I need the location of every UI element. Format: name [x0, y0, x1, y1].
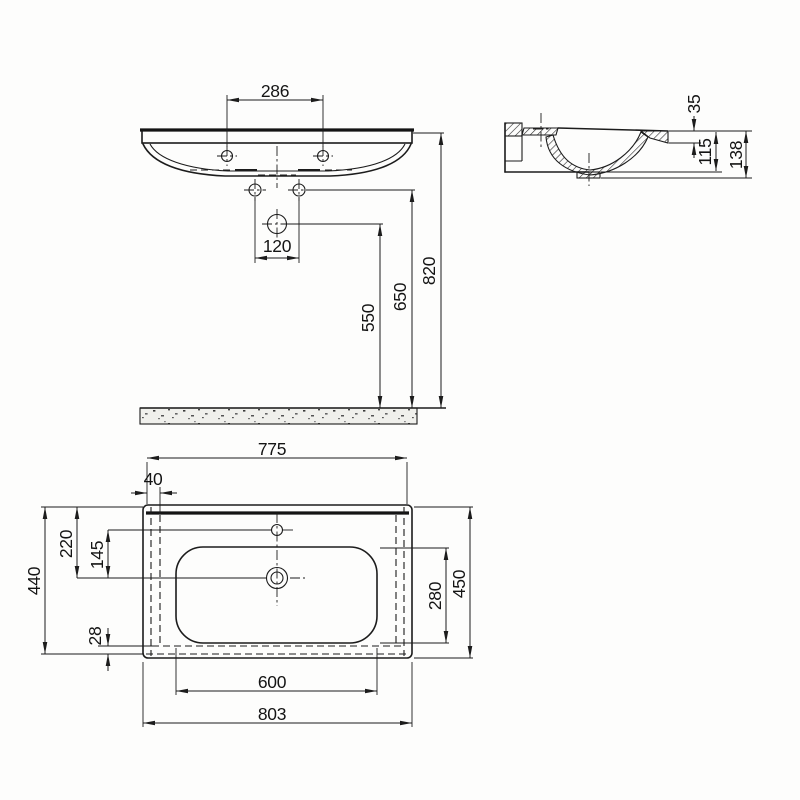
dim-tap-to-drain: 145	[87, 541, 107, 569]
bowl-outline-plan	[176, 547, 377, 643]
plan-view: 775 40 440 220 145 28 280 450 600	[24, 439, 473, 727]
dim-overall-height: 820	[419, 256, 439, 285]
dim-tap-hole-spacing: 286	[261, 81, 289, 101]
dim-overall-width: 803	[258, 704, 286, 724]
drain-hole-plan	[267, 568, 306, 589]
dim-drain-height: 550	[358, 303, 378, 332]
dim-bowl-inner-width: 600	[258, 672, 287, 692]
tap-hole-plan	[272, 525, 297, 536]
dim-bowl-inner-depth: 280	[425, 581, 445, 610]
drain-boss-section	[577, 172, 600, 178]
dim-back-edge-offset: 40	[144, 469, 163, 489]
side-view: 35 115 138	[505, 95, 752, 186]
technical-drawing: 286 120 550 650	[0, 0, 800, 800]
bowl-wall-section	[546, 132, 648, 175]
dim-overall-depth-plan: 440	[24, 566, 44, 595]
dim-fixing-hole-spacing: 120	[263, 236, 292, 256]
dim-top-width: 775	[258, 439, 286, 459]
dim-bowl-depth: 115	[695, 139, 715, 166]
dim-back-to-drain: 220	[56, 529, 76, 558]
back-ledge-section	[505, 123, 522, 136]
tap-hole-right	[313, 146, 333, 166]
dim-fixing-hole-height: 650	[390, 282, 410, 311]
basin-rim-front	[142, 130, 412, 143]
drain-hole-front	[262, 209, 292, 239]
drawing-canvas: 286 120 550 650	[0, 0, 800, 800]
bowl-inner-line-front	[150, 144, 405, 171]
tap-hole-left	[217, 146, 237, 166]
dim-overall-depth: 138	[726, 141, 746, 169]
dim-rim-thickness: 35	[684, 95, 704, 114]
front-view: 286 120 550 650	[140, 81, 446, 424]
dim-front-lip: 28	[85, 627, 105, 646]
dim-side-depth: 450	[449, 569, 469, 598]
floor-hatch	[140, 408, 417, 424]
